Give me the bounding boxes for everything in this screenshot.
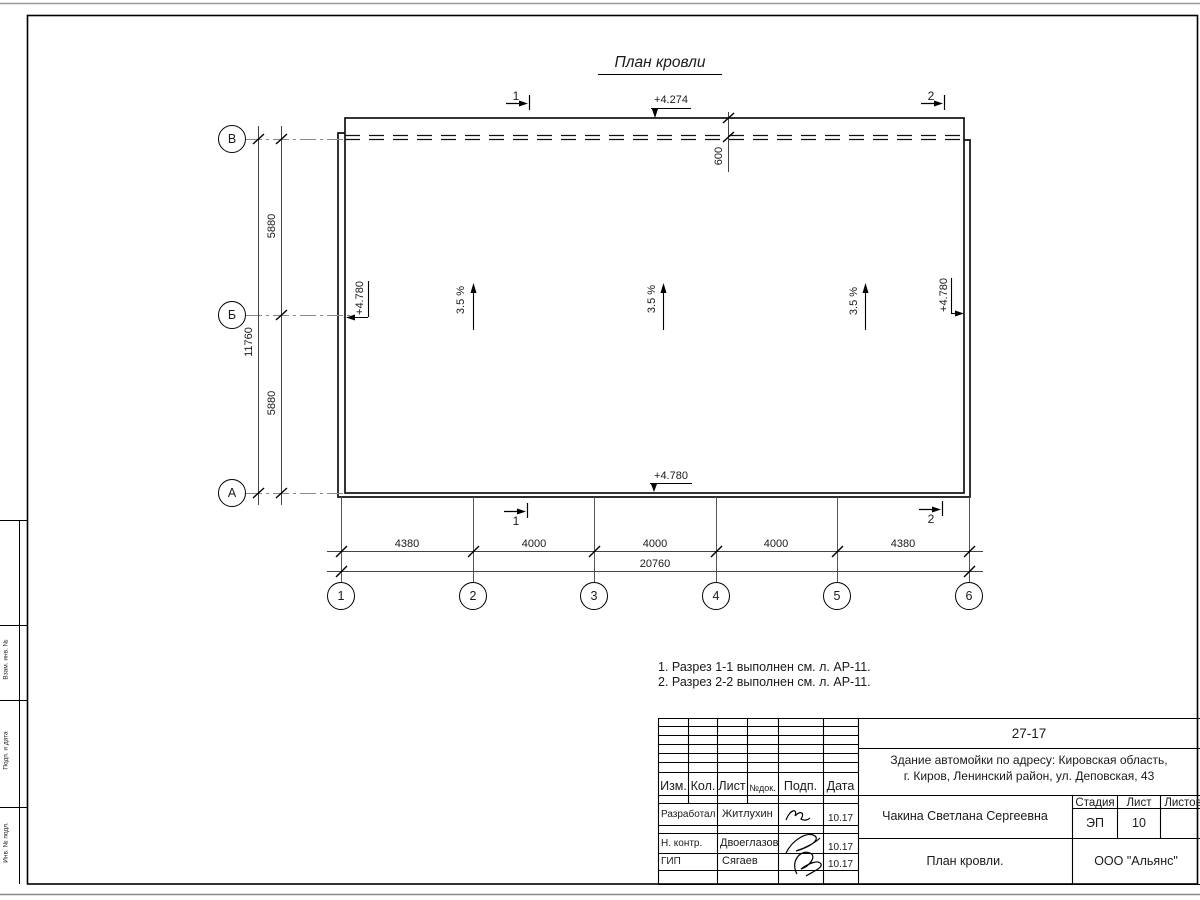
header-podp: Подп.: [778, 779, 823, 793]
axis-circle-5: 5: [823, 582, 851, 610]
header-data: Дата: [823, 779, 858, 793]
author-name: Чакина Светлана Сергеевна: [860, 809, 1070, 823]
header-izm: Изм.: [658, 779, 689, 793]
axis-circle-a: А: [218, 479, 246, 507]
margin-label-vzam: Взам. инв. №: [3, 625, 10, 695]
dim-4000-1: 4000: [494, 538, 574, 550]
elevation-right: +4.780: [938, 255, 950, 335]
row-name-3: Сягаев: [722, 855, 758, 867]
axis-circle-3: 3: [580, 582, 608, 610]
signatures: [786, 811, 821, 876]
signature-3: [795, 852, 822, 876]
margin-label-podp: Подп. и дата: [3, 716, 10, 786]
row-date-1: 10.17: [823, 813, 858, 824]
axis-label: 1: [338, 589, 345, 603]
project-address: Здание автомойки по адресу: Кировская об…: [859, 752, 1199, 784]
dim-4380-2: 4380: [863, 538, 943, 550]
dim-600: 600: [713, 126, 725, 186]
dimension-ticks: [253, 113, 975, 577]
dim-4000-2: 4000: [615, 538, 695, 550]
slope-arrows: [471, 283, 869, 330]
row-name-1: Житлухин: [722, 808, 773, 820]
stage-label: Стадия: [1073, 797, 1117, 809]
axis-circle-b: Б: [218, 301, 246, 329]
dimension-lines: [259, 112, 984, 572]
note-line: 2. Разрез 2-2 выполнен см. л. АР-11.: [658, 675, 871, 690]
doc-code: 27-17: [929, 726, 1129, 741]
stage-value: ЭП: [1073, 816, 1117, 830]
axis-circle-4: 4: [702, 582, 730, 610]
sheets-label: Листов: [1161, 797, 1200, 809]
axis-label: Б: [228, 308, 236, 322]
axis-label: 3: [591, 589, 598, 603]
header-kol: Кол.: [688, 779, 718, 793]
dim-5880-top: 5880: [266, 191, 278, 261]
elevation-bottom: +4.780: [631, 470, 711, 482]
company-name: ООО "Альянс": [1074, 854, 1198, 868]
axis-label: 6: [966, 589, 973, 603]
drawing-title: План кровли: [598, 54, 722, 75]
row-role-3: ГИП: [661, 856, 681, 867]
note-line: 1. Разрез 1-1 выполнен см. л. АР-11.: [658, 660, 871, 675]
row-name-2: Двоеглазов: [720, 837, 778, 849]
header-list: Лист: [716, 779, 748, 793]
axis-circle-6: 6: [955, 582, 983, 610]
margin-label-inv: Инв. № подл.: [3, 808, 10, 878]
axis-label: 4: [713, 589, 720, 603]
sheet-label: Лист: [1118, 797, 1160, 809]
dim-4000-3: 4000: [736, 538, 816, 550]
row-date-2: 10.17: [823, 842, 858, 853]
axis-label: А: [228, 486, 236, 500]
row-role-1: Разработал: [661, 809, 715, 820]
notes: 1. Разрез 1-1 выполнен см. л. АР-11. 2. …: [658, 660, 871, 690]
slope-label: 3.5 %: [848, 266, 860, 336]
axis-lines: [246, 140, 353, 494]
axis-label: 5: [834, 589, 841, 603]
address-line-1: Здание автомойки по адресу: Кировская об…: [859, 752, 1199, 768]
address-line-2: г. Киров, Ленинский район, ул. Деповская…: [859, 768, 1199, 784]
dim-4380-1: 4380: [367, 538, 447, 550]
signature-1: [786, 811, 810, 820]
slope-label: 3.5 %: [646, 264, 658, 334]
drawing-sheet: План кровли +4.274 +4.780 +4.780 +4.780 …: [0, 0, 1200, 900]
section-label-bottom-2: 2: [921, 512, 941, 526]
row-date-3: 10.17: [823, 859, 858, 870]
axis-circle-2: 2: [459, 582, 487, 610]
dim-20760: 20760: [615, 558, 695, 570]
axis-label: В: [228, 132, 236, 146]
section-label-top-1: 1: [506, 89, 526, 103]
row-role-2: Н. контр.: [661, 838, 702, 849]
axis-circle-1: 1: [327, 582, 355, 610]
slope-label: 3.5 %: [455, 265, 467, 335]
header-ndok: №док.: [747, 783, 778, 793]
section-label-top-2: 2: [921, 89, 941, 103]
signature-2: [786, 835, 820, 853]
sheet-value: 10: [1118, 816, 1160, 830]
elevation-left: +4.780: [354, 258, 366, 338]
axis-label: 2: [470, 589, 477, 603]
section-label-bottom-1: 1: [506, 514, 526, 528]
dim-5880-bottom: 5880: [266, 368, 278, 438]
sheet-title: План кровли.: [860, 854, 1070, 868]
elevation-top: +4.274: [631, 94, 711, 106]
axis-circle-v: В: [218, 125, 246, 153]
